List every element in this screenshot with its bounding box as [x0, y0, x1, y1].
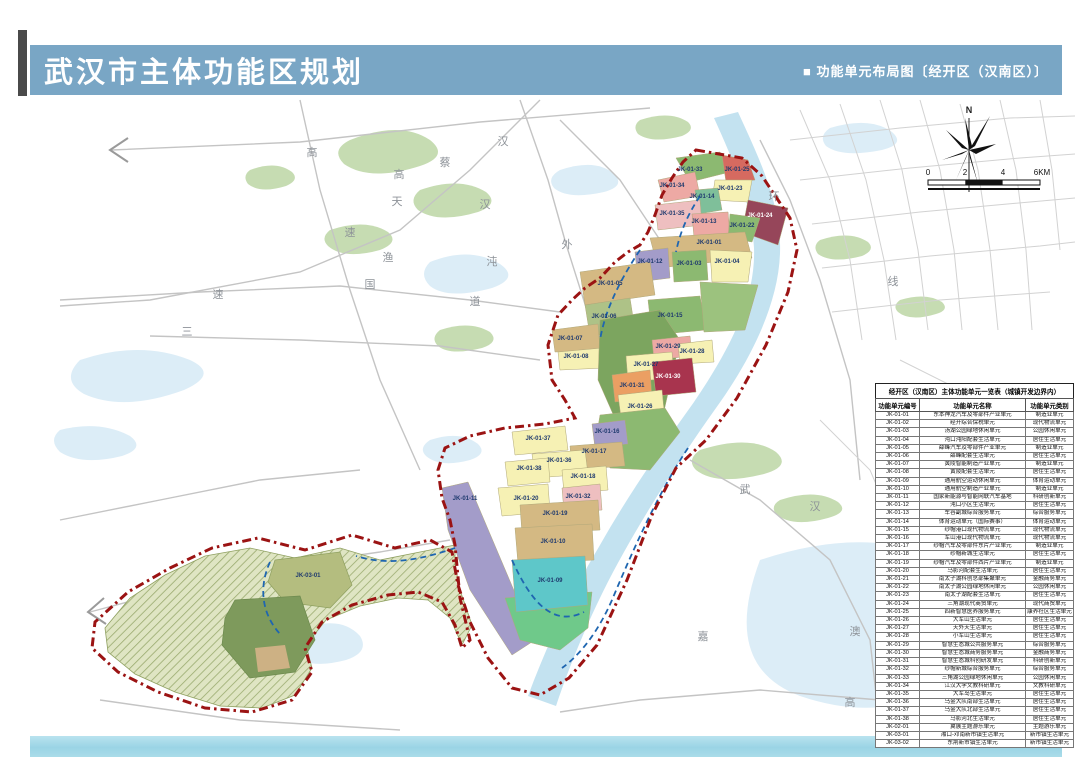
unit-label: JK-01-17	[581, 449, 606, 455]
unit-label: JK-01-04	[714, 259, 739, 265]
table-cell: 薛峰汽车及零部件产业单元	[920, 444, 1026, 452]
table-row: JK-01-18纱帽新城生活单元居住生活单元	[876, 551, 1074, 559]
table-cell: 纱帽汽车及零部件东片产业单元	[920, 543, 1026, 551]
table-cell: 体育运动单元	[1026, 477, 1074, 485]
table-row: JK-01-17纱帽汽车及零部件东片产业单元制造业单元	[876, 543, 1074, 551]
table-cell: 乌金大队南部生活单元	[920, 699, 1026, 707]
unit-label: JK-01-05	[597, 281, 622, 287]
table-row: JK-01-37乌金大队北部生活单元居住生活单元	[876, 707, 1074, 715]
table-cell: 马影河北生活单元	[920, 715, 1026, 723]
table-row: JK-01-34江汉大学文教科研单元文教科研单元	[876, 682, 1074, 690]
col-unit-code: 功能单元编号	[876, 399, 920, 412]
table-cell: 湘口-邓南新市镇生活单元	[920, 731, 1026, 739]
table-cell: JK-01-27	[876, 625, 920, 633]
unit-label: JK-01-26	[627, 404, 652, 410]
table-cell: 智慧生态城公共服务单元	[920, 641, 1026, 649]
table-cell: 制造业单元	[1026, 559, 1074, 567]
table-cell: 科研创新单元	[1026, 494, 1074, 502]
road-name-label: 沌	[487, 253, 498, 269]
table-cell: 居住生活单元	[1026, 625, 1074, 633]
table-cell: JK-01-18	[876, 551, 920, 559]
table-cell: JK-01-03	[876, 428, 920, 436]
road-name-label: 渔	[383, 249, 394, 265]
table-cell: 翼展主题游乐单元	[920, 723, 1026, 731]
table-cell: 纱帽新城综合服务单元	[920, 666, 1026, 674]
road-name-label: 高	[845, 694, 856, 710]
road-name-label: 汉	[810, 498, 821, 514]
table-cell: JK-01-22	[876, 584, 920, 592]
table-header-row: 功能单元编号 功能单元名称 功能单元类别	[876, 399, 1074, 412]
table-row: JK-01-33三角湖公园绿地休闲单元公园休闲单元	[876, 674, 1074, 682]
road-name-label: 国	[365, 276, 376, 292]
table-cell: 居住生活单元	[1026, 715, 1074, 723]
table-row: JK-01-04沌口沌阳配套生活单元居住生活单元	[876, 436, 1074, 444]
table-cell: 公园休闲单元	[1026, 428, 1074, 436]
margin-accent-strip	[18, 30, 27, 96]
unit-label: JK-01-34	[659, 183, 684, 189]
table-cell: 江汉大学文教科研单元	[920, 682, 1026, 690]
table-cell: 主题游乐单元	[1026, 723, 1074, 731]
table-cell: JK-01-33	[876, 674, 920, 682]
table-cell: 科研创新单元	[1026, 658, 1074, 666]
table-cell: 薛峰配套生活单元	[920, 453, 1026, 461]
unit-label: JK-01-16	[594, 429, 619, 435]
table-cell: 居住生活单元	[1026, 707, 1074, 715]
unit-label: JK-01-10	[540, 539, 565, 545]
table-cell: 小军山生活单元	[920, 633, 1026, 641]
table-cell: JK-01-36	[876, 699, 920, 707]
table-cell: 智慧生态城商务服务单元	[920, 649, 1026, 657]
unit-label: JK-01-18	[570, 474, 595, 480]
table-cell: 黄陵配套生活单元	[920, 469, 1026, 477]
table-cell: 综合服务单元	[1026, 510, 1074, 518]
table-cell: 公园休闲单元	[1026, 584, 1074, 592]
unit-list-table: 经开区（汉南区）主体功能单元一览表（城镇开发边界内） 功能单元编号 功能单元名称…	[875, 383, 1074, 748]
table-row: JK-01-03汤湖公园绿地休闲单元公园休闲单元	[876, 428, 1074, 436]
table-cell: 现代物流单元	[1026, 535, 1074, 543]
table-row: JK-01-20马影河配套生活单元居住生活单元	[876, 567, 1074, 575]
table-cell: 体育运动单元（国际赛事）	[920, 518, 1026, 526]
table-row: JK-02-01翼展主题游乐单元主题游乐单元	[876, 723, 1074, 731]
table-row: JK-01-15纱帽港口现代物流单元现代物流单元	[876, 526, 1074, 534]
table-cell: 沌口沌阳配套生活单元	[920, 436, 1026, 444]
unit-label: JK-01-14	[689, 194, 714, 200]
unit-label: JK-01-19	[542, 511, 567, 517]
road-name-label: 外	[562, 236, 573, 252]
table-cell: 金融商务单元	[1026, 649, 1074, 657]
scale-tick-label: 0	[926, 168, 930, 177]
table-cell: JK-01-24	[876, 600, 920, 608]
road-name-label: 汉	[498, 133, 509, 149]
unit-label: JK-01-07	[557, 336, 582, 342]
village-area	[255, 645, 290, 672]
road-name-label: 环	[769, 188, 780, 204]
unit-label: JK-01-23	[717, 186, 742, 192]
table-row: JK-01-12沌口小区生活单元居住生活单元	[876, 502, 1074, 510]
table-row: JK-03-01湘口-邓南新市镇生活单元新市镇生活单元	[876, 731, 1074, 739]
road-name-label: 嘉	[698, 628, 709, 644]
table-cell: JK-01-13	[876, 510, 920, 518]
unit-label: JK-01-37	[525, 436, 550, 442]
table-cell: 居住生活单元	[1026, 567, 1074, 575]
table-cell: 东本神龙汽车及零部件产业单元	[920, 412, 1026, 420]
table-row: JK-01-16军山港口现代物流单元现代物流单元	[876, 535, 1074, 543]
table-cell: 居住生活单元	[1026, 469, 1074, 477]
table-cell: JK-01-26	[876, 617, 920, 625]
header-bar: 武汉市主体功能区规划 ■ 功能单元布局图〔经开区（汉南区）〕	[30, 45, 1062, 95]
unit-label: JK-01-03	[676, 261, 701, 267]
table-cell: 三角湖公园绿地休闲单元	[920, 674, 1026, 682]
table-row: JK-01-25四新智慧医养服务单元康养社区生活单元	[876, 608, 1074, 616]
table-cell: 居住生活单元	[1026, 436, 1074, 444]
table-cell: JK-01-32	[876, 666, 920, 674]
table-cell: JK-01-12	[876, 502, 920, 510]
table-cell: 制造业单元	[1026, 485, 1074, 493]
plan-sheet: N 0246KM JK-01-33JK-01-25JK-01-34JK-01-2…	[0, 0, 1080, 764]
table-row: JK-01-06薛峰配套生活单元居住生活单元	[876, 453, 1074, 461]
table-cell: JK-01-17	[876, 543, 920, 551]
table-row: JK-01-36乌金大队南部生活单元居住生活单元	[876, 699, 1074, 707]
unit-label: JK-03-01	[295, 573, 320, 579]
table-cell: JK-01-31	[876, 658, 920, 666]
table-cell: 天外天生活单元	[920, 625, 1026, 633]
table-cell: 现代物流单元	[1026, 526, 1074, 534]
table-row: JK-01-29智慧生态城公共服务单元综合服务单元	[876, 641, 1074, 649]
table-row: JK-01-07黄陵智能制造产业单元制造业单元	[876, 461, 1074, 469]
road-name-label: 速	[345, 224, 356, 240]
table-cell: JK-01-01	[876, 412, 920, 420]
table-row: JK-01-35大军岛生活单元居住生活单元	[876, 690, 1074, 698]
unit-label: JK-01-08	[563, 354, 588, 360]
table-row: JK-01-19纱帽汽车及零部件西片产业单元制造业单元	[876, 559, 1074, 567]
unit-label: JK-01-06	[591, 314, 616, 320]
road-name-label: 速	[213, 286, 224, 302]
road-name-label: 澳	[850, 623, 861, 639]
table-cell: JK-01-11	[876, 494, 920, 502]
unit-label: JK-01-29	[655, 344, 680, 350]
table-cell: JK-01-05	[876, 444, 920, 452]
table-cell: 居住生活单元	[1026, 502, 1074, 510]
table-cell: JK-01-29	[876, 641, 920, 649]
table-cell: JK-01-04	[876, 436, 920, 444]
table-row: JK-01-30智慧生态城商务服务单元金融商务单元	[876, 649, 1074, 657]
table-cell: 制造业单元	[1026, 412, 1074, 420]
table-cell: 居住生活单元	[1026, 551, 1074, 559]
table-cell: 纱帽港口现代物流单元	[920, 526, 1026, 534]
road-name-label: 汉	[480, 196, 491, 212]
unit-label: JK-01-20	[513, 496, 538, 502]
road-name-label: 道	[470, 293, 481, 309]
unit-label: JK-01-33	[677, 167, 702, 173]
table-cell: 东荆新市镇生活单元	[920, 740, 1026, 748]
col-unit-type: 功能单元类别	[1026, 399, 1074, 412]
unit-label: JK-01-25	[724, 167, 749, 173]
table-row: JK-01-05薛峰汽车及零部件产业单元制造业单元	[876, 444, 1074, 452]
table-cell: 综合服务单元	[1026, 641, 1074, 649]
unit-label: JK-01-11	[453, 496, 478, 502]
table-cell: 马影河配套生活单元	[920, 567, 1026, 575]
table-cell: JK-01-07	[876, 461, 920, 469]
table-cell: 通用航空运动休闲单元	[920, 477, 1026, 485]
table-row: JK-01-38马影河北生活单元居住生活单元	[876, 715, 1074, 723]
table-cell: JK-01-38	[876, 715, 920, 723]
table-cell: 经开综合保税单元	[920, 420, 1026, 428]
road-name-label: 高	[394, 166, 405, 182]
scale-tick-label: 6KM	[1034, 168, 1050, 177]
table-cell: JK-01-16	[876, 535, 920, 543]
table-cell: 南太子湖公园绿地休闲单元	[920, 584, 1026, 592]
unit-label: JK-01-12	[637, 259, 662, 265]
unit-label: JK-01-30	[655, 374, 680, 380]
table-cell: 国家新能源与智能网联汽车基地	[920, 494, 1026, 502]
table-row: JK-01-31智慧生态城科创研发单元科研创新单元	[876, 658, 1074, 666]
table-cell: JK-01-02	[876, 420, 920, 428]
road-name-label: 高	[307, 144, 318, 160]
table-cell: 通用航空制造产业单元	[920, 485, 1026, 493]
table-row: JK-01-01东本神龙汽车及零部件产业单元制造业单元	[876, 412, 1074, 420]
table-row: JK-01-24三角湖现代商贸单元现代商贸单元	[876, 600, 1074, 608]
table-row: JK-01-14体育运动单元（国际赛事）体育运动单元	[876, 518, 1074, 526]
table-cell: JK-01-21	[876, 576, 920, 584]
table-row: JK-01-32纱帽新城综合服务单元综合服务单元	[876, 666, 1074, 674]
table-row: JK-01-26大军山生活单元居住生活单元	[876, 617, 1074, 625]
table-cell: JK-01-28	[876, 633, 920, 641]
table-cell: JK-01-08	[876, 469, 920, 477]
table-row: JK-03-02东荆新市镇生活单元新市镇生活单元	[876, 740, 1074, 748]
table-row: JK-01-21南太子湖科创总部集聚单元金融商务单元	[876, 576, 1074, 584]
table-cell: JK-02-01	[876, 723, 920, 731]
table-cell: 南太子湖配套生活单元	[920, 592, 1026, 600]
table-cell: JK-03-01	[876, 731, 920, 739]
table-cell: 大军岛生活单元	[920, 690, 1026, 698]
scale-tick-label: 2	[963, 168, 967, 177]
unit-label: JK-01-32	[565, 494, 590, 500]
table-cell: 四新智慧医养服务单元	[920, 608, 1026, 616]
table-cell: 三角湖现代商贸单元	[920, 600, 1026, 608]
table-cell: 文教科研单元	[1026, 682, 1074, 690]
table-cell: 综合服务单元	[1026, 666, 1074, 674]
road-name-label: 天	[392, 193, 403, 209]
unit-label: JK-01-38	[516, 466, 541, 472]
table-cell: 居住生活单元	[1026, 690, 1074, 698]
table-cell: 居住生活单元	[1026, 592, 1074, 600]
road-name-label: 三	[182, 323, 193, 339]
table-cell: JK-01-25	[876, 608, 920, 616]
table-cell: 黄陵智能制造产业单元	[920, 461, 1026, 469]
table-cell: 康养社区生活单元	[1026, 608, 1074, 616]
table-row: JK-01-10通用航空制造产业单元制造业单元	[876, 485, 1074, 493]
unit-label: JK-01-31	[619, 383, 644, 389]
table-row: JK-01-08黄陵配套生活单元居住生活单元	[876, 469, 1074, 477]
table-row: JK-01-27天外天生活单元居住生活单元	[876, 625, 1074, 633]
table-cell: 居住生活单元	[1026, 453, 1074, 461]
table-cell: JK-01-20	[876, 567, 920, 575]
table-cell: 居住生活单元	[1026, 617, 1074, 625]
table-cell: 居住生活单元	[1026, 699, 1074, 707]
table-cell: JK-01-37	[876, 707, 920, 715]
table-cell: 金融商务单元	[1026, 576, 1074, 584]
table-cell: JK-01-15	[876, 526, 920, 534]
table-cell: 军山港口现代物流单元	[920, 535, 1026, 543]
table-cell: 汤湖公园绿地休闲单元	[920, 428, 1026, 436]
unit-label: JK-01-36	[546, 458, 571, 464]
unit-label: JK-01-24	[747, 213, 772, 219]
table-cell: JK-01-35	[876, 690, 920, 698]
table-cell: 制造业单元	[1026, 444, 1074, 452]
table-cell: 车谷副城综合服务单元	[920, 510, 1026, 518]
table-cell: JK-01-14	[876, 518, 920, 526]
table-row: JK-01-13车谷副城综合服务单元综合服务单元	[876, 510, 1074, 518]
table-cell: 新市镇生活单元	[1026, 731, 1074, 739]
table-row: JK-01-22南太子湖公园绿地休闲单元公园休闲单元	[876, 584, 1074, 592]
page-title: 武汉市主体功能区规划	[44, 49, 364, 91]
road-name-label: 蔡	[440, 154, 451, 170]
road-name-label: 武	[740, 481, 751, 497]
table-cell: JK-01-06	[876, 453, 920, 461]
table-cell: 制造业单元	[1026, 461, 1074, 469]
unit-label: JK-01-15	[657, 313, 682, 319]
table-row: JK-01-23南太子湖配套生活单元居住生活单元	[876, 592, 1074, 600]
table-row: JK-01-11国家新能源与智能网联汽车基地科研创新单元	[876, 494, 1074, 502]
unit-label: JK-01-35	[659, 211, 684, 217]
col-unit-name: 功能单元名称	[920, 399, 1026, 412]
unit-label: JK-01-22	[729, 223, 754, 229]
table-row: JK-01-02经开综合保税单元现代物流单元	[876, 420, 1074, 428]
unit-label: JK-01-09	[537, 578, 562, 584]
road-name-label: 线	[888, 273, 899, 289]
table-cell: 纱帽汽车及零部件西片产业单元	[920, 559, 1026, 567]
table-row: JK-01-28小军山生活单元居住生活单元	[876, 633, 1074, 641]
table-cell: 体育运动单元	[1026, 518, 1074, 526]
table-cell: JK-01-09	[876, 477, 920, 485]
table-cell: JK-01-23	[876, 592, 920, 600]
table-cell: 现代物流单元	[1026, 420, 1074, 428]
table-cell: 现代商贸单元	[1026, 600, 1074, 608]
table-cell: 制造业单元	[1026, 543, 1074, 551]
table-cell: 南太子湖科创总部集聚单元	[920, 576, 1026, 584]
table-cell: JK-01-19	[876, 559, 920, 567]
table-cell: 大军山生活单元	[920, 617, 1026, 625]
map-subtitle: ■ 功能单元布局图〔经开区（汉南区）〕	[803, 61, 1048, 80]
table-cell: 公园休闲单元	[1026, 674, 1074, 682]
table-cell: 居住生活单元	[1026, 633, 1074, 641]
table-cell: JK-03-02	[876, 740, 920, 748]
unit-label: JK-01-27	[633, 362, 658, 368]
table-cell: JK-01-30	[876, 649, 920, 657]
unit-label: JK-01-28	[679, 349, 704, 355]
table-cell: 乌金大队北部生活单元	[920, 707, 1026, 715]
scale-tick-label: 4	[1001, 168, 1005, 177]
table-cell: 新市镇生活单元	[1026, 740, 1074, 748]
table-cell: 纱帽新城生活单元	[920, 551, 1026, 559]
table-cell: 沌口小区生活单元	[920, 502, 1026, 510]
table-title: 经开区（汉南区）主体功能单元一览表（城镇开发边界内）	[875, 383, 1074, 398]
compass-north-label: N	[966, 105, 973, 115]
unit-label: JK-01-13	[691, 219, 716, 225]
table-cell: 智慧生态城科创研发单元	[920, 658, 1026, 666]
table-cell: JK-01-34	[876, 682, 920, 690]
table-cell: JK-01-10	[876, 485, 920, 493]
table-row: JK-01-09通用航空运动休闲单元体育运动单元	[876, 477, 1074, 485]
unit-label: JK-01-01	[696, 240, 721, 246]
